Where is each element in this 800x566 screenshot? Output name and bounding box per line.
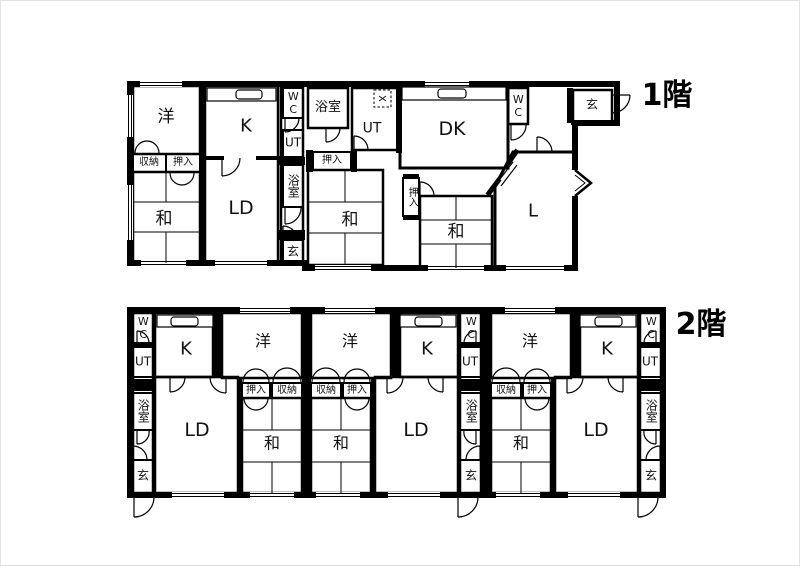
room-label-2f-u3-shuno: 収納 [496,386,516,397]
room-label-2f-u1-ld: LD [184,421,209,441]
kitchen-sink-icon [171,317,198,326]
room-label-2f-u3-yo: 洋 [522,334,538,351]
room-label-2f-u1-shuno: 収納 [277,386,297,397]
room-label-2f-u2-yo: 洋 [342,334,358,351]
room-label-2f-u2-shuno: 収納 [316,386,336,397]
room-label-2f-u2-wa: 和 [333,436,349,453]
room-label-2f-u3-genkan: 玄 [645,470,657,483]
floor-1-tatami [133,170,492,268]
kitchen-sink-icon [438,89,466,98]
floor-2-tatami [242,398,551,493]
room-label-1f-oshiire-c: 押入 [406,187,417,207]
room-label-2f-u1-bath: 浴室 [137,399,150,423]
room-label-2f-u2-genkan: 玄 [465,470,477,483]
room-label-2f-u3-ut: UT [642,356,658,369]
kitchen-sink-icon [595,317,622,326]
room-label-2f-u3-wa: 和 [513,436,529,453]
floor-1-thick-walls [199,85,612,263]
room-label-2f-u1-k: K [180,341,192,360]
room-label-2f-u1-wc: WC [137,315,149,341]
room-label-2f-u1-oshiire: 押入 [246,386,266,397]
room-label-1f-genkan-left: 玄 [287,246,299,259]
room-label-2f-u2-oshiire: 押入 [347,386,367,397]
room-label-2f-u3-ld: LD [583,421,608,441]
room-label-2f-u2-ld: LD [403,421,428,441]
room-label-1f-living: L [528,203,538,222]
room-label-1f-ut-left: UT [285,137,301,150]
floor-plan-page: 洋 K WC UT 浴室 玄 収納 押入 和 LD 浴室 UT 押入 和 DK … [0,0,800,566]
room-label-2f-u3-wc: WC [645,315,657,341]
room-label-2f-u2-wc: WC [465,315,477,341]
floor-2-thick-walls [131,310,662,493]
floor-label-2f: 2階 [676,299,727,343]
room-label-1f-bath-mid: 浴室 [315,101,341,115]
kitchen-sink-icon [236,90,262,99]
room-label-1f-k: K [240,118,252,137]
room-label-2f-u3-k: K [601,341,613,360]
room-label-1f-wc-right: WC [512,93,524,119]
room-label-1f-wa-a: 和 [156,211,173,229]
room-label-1f-shuno: 収納 [139,158,159,169]
room-label-2f-u2-k: K [421,341,433,360]
room-label-1f-wc-left: WC [287,90,299,116]
room-label-2f-u1-yo: 洋 [255,334,271,351]
room-label-1f-yo: 洋 [158,109,175,127]
floor-label-1f: 1階 [642,70,693,114]
room-label-2f-u3-oshiire: 押入 [527,386,547,397]
room-label-1f-wa-c: 和 [448,224,465,242]
room-label-1f-dk: DK [438,120,465,140]
floor-2-plan [130,307,663,517]
room-label-2f-u1-wa: 和 [264,436,280,453]
room-label-2f-u2-ut: UT [462,356,478,369]
room-label-1f-genkan-right: 玄 [586,99,598,112]
room-label-1f-wa-b: 和 [342,212,359,230]
room-label-1f-ld: LD [228,199,253,219]
kitchen-sink-icon [415,317,442,326]
room-label-2f-u1-ut: UT [135,356,151,369]
room-label-1f-ut-mid: UT [363,122,382,137]
room-label-1f-bath-left: 浴室 [287,174,300,198]
room-label-2f-u3-bath: 浴室 [645,399,658,423]
floor-1-plan [127,81,630,271]
room-label-1f-oshiire-a: 押入 [173,158,193,169]
room-label-2f-u1-genkan: 玄 [137,470,149,483]
room-label-1f-oshiire-b: 押入 [322,156,342,167]
room-label-2f-u2-bath: 浴室 [465,399,478,423]
